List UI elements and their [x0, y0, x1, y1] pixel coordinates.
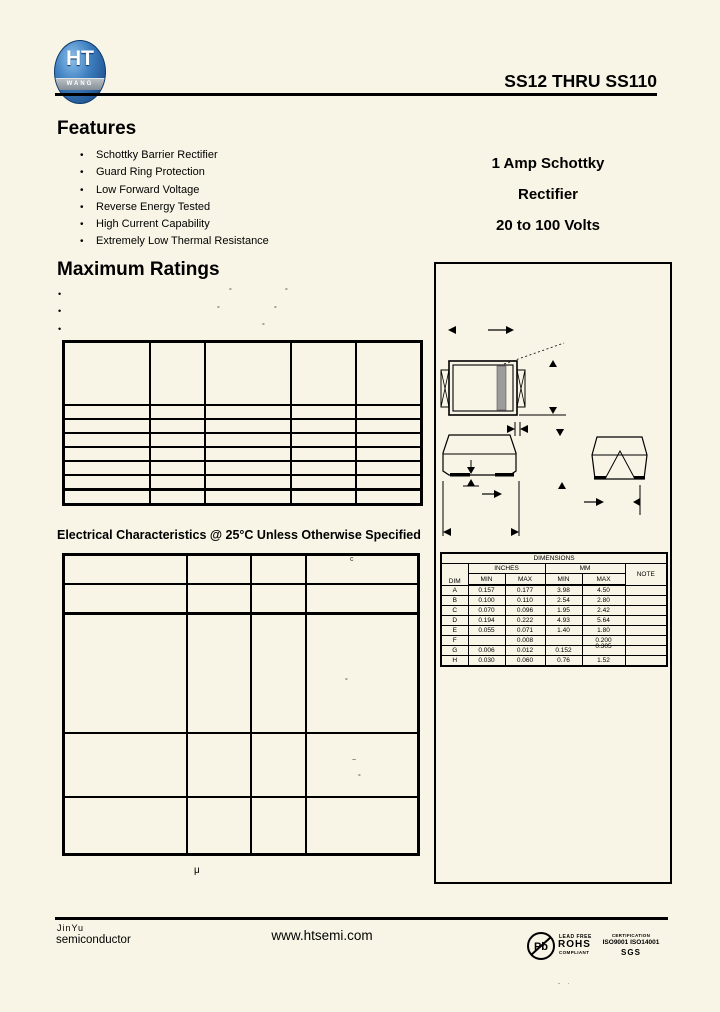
footer-company-name: JinYu: [57, 923, 84, 933]
datasheet-page: HT WANG ····· SS12 THRU SS110 Features S…: [0, 0, 720, 1012]
dims-group-inches: INCHES: [468, 564, 545, 574]
table-row: D0.1940.2224.935.64: [441, 616, 667, 626]
max-ratings-heading: Maximum Ratings: [57, 259, 220, 281]
dim-arrow-icon: [511, 528, 519, 536]
table-row: H0.0300.0600.761.52: [441, 656, 667, 667]
table-row: [64, 447, 422, 461]
dims-col-min: MIN: [468, 574, 505, 586]
table-row: [64, 733, 419, 797]
table-row: [64, 614, 419, 734]
pb-text: Pb: [534, 941, 548, 953]
summary-line-3: 20 to 100 Volts: [428, 210, 668, 241]
feature-item: Guard Ring Protection: [96, 164, 269, 181]
logo-band-text: WANG: [55, 78, 105, 90]
dims-col-max: MAX: [582, 574, 625, 586]
dim-arrow-icon: [633, 498, 640, 506]
table-row: DIM INCHES MM NOTE: [441, 564, 667, 574]
stray-degree-glyph: °: [217, 306, 220, 313]
stray-degree-glyph: °: [285, 288, 288, 295]
table-row: F0.0080.200: [441, 636, 667, 646]
dim-arrow-icon: [549, 360, 557, 367]
footer-divider: [55, 917, 668, 920]
compliant-label: COMPLIANT: [559, 950, 589, 955]
dim-arrow-icon: [520, 425, 528, 433]
lead-foot: [594, 476, 606, 480]
dim-arrow-icon: [506, 326, 514, 334]
stray-degree-glyph: °: [345, 678, 348, 685]
table-row: [64, 461, 422, 475]
max-ratings-table: [62, 340, 423, 506]
dim-arrow-icon: [549, 407, 557, 414]
table-row: [64, 342, 422, 406]
stray-degree-glyph: °: [358, 774, 361, 781]
dim-arrow-icon: [556, 429, 564, 436]
stray-degree-glyph: °: [274, 306, 277, 313]
dimensions-table: DIMENSIONS DIM INCHES MM NOTE MIN MAX MI…: [440, 552, 668, 667]
table-row: [64, 475, 422, 490]
stray-degree-glyph: °: [229, 288, 232, 295]
footer-website: www.htsemi.com: [222, 928, 422, 943]
dims-col-dim: DIM: [441, 564, 468, 586]
feature-item: Reverse Energy Tested: [96, 199, 269, 216]
feature-item: Low Forward Voltage: [96, 182, 269, 199]
package-side-view: [443, 429, 566, 536]
dim-arrow-icon: [448, 326, 456, 334]
table-row: [64, 433, 422, 447]
package-drawings: [436, 264, 670, 564]
dims-col-min: MIN: [545, 574, 582, 586]
sgs-label: SGS: [596, 948, 666, 957]
product-summary: 1 Amp Schottky Rectifier 20 to 100 Volts: [428, 148, 668, 241]
stray-glyph: c: [350, 556, 354, 563]
logo-text: HT: [55, 47, 105, 71]
feature-item: Schottky Barrier Rectifier: [96, 147, 269, 164]
feature-item: Extremely Low Thermal Resistance: [96, 233, 269, 250]
stray-degree-glyph: °: [262, 323, 265, 330]
summary-line-2: Rectifier: [428, 179, 668, 210]
dims-title: DIMENSIONS: [441, 553, 667, 564]
bullet-marker: •: [58, 289, 61, 299]
table-row: G0.0060.0120.1520.305: [441, 646, 667, 656]
table-row: [64, 584, 419, 614]
table-row: E0.0550.0711.401.80: [441, 626, 667, 636]
lead-foot: [495, 473, 514, 477]
page-mark: - ·: [558, 981, 573, 987]
feature-item: High Current Capability: [96, 216, 269, 233]
table-row: [64, 405, 422, 419]
micro-symbol: μ: [194, 865, 200, 876]
stray-glyph: ~: [352, 757, 356, 764]
dim-arrow-icon: [467, 467, 475, 474]
iso-label: ISO9001 ISO14001: [596, 939, 666, 946]
table-row: [64, 555, 419, 585]
lead-foot: [634, 476, 645, 480]
elec-char-heading: Electrical Characteristics @ 25°C Unless…: [57, 528, 421, 542]
table-row: C0.0700.0961.952.42: [441, 606, 667, 616]
certification-label: CERTIFICATION: [601, 933, 661, 938]
footer-company-name-2: semiconductor: [56, 934, 131, 946]
dims-group-mm: MM: [545, 564, 625, 574]
table-row: B0.1000.1102.542.80: [441, 596, 667, 606]
dims-col-max: MAX: [505, 574, 545, 586]
dim-arrow-icon: [443, 528, 451, 536]
table-row: [64, 797, 419, 855]
summary-line-1: 1 Amp Schottky: [428, 148, 668, 179]
package-top-view: [441, 326, 566, 436]
dim-arrow-icon: [558, 482, 566, 489]
page-title: SS12 THRU SS110: [350, 71, 657, 92]
bullet-marker: •: [58, 306, 61, 316]
lead-free-pb-logo: Pb: [526, 931, 556, 966]
table-row: DIMENSIONS: [441, 553, 667, 564]
dim-arrow-icon: [596, 498, 604, 506]
cathode-band: [497, 366, 506, 410]
title-divider: [55, 93, 657, 96]
features-heading: Features: [57, 118, 136, 140]
dim-arrow-icon: [494, 490, 502, 498]
table-row: A0.1570.1773.984.50: [441, 585, 667, 596]
dim-arrow-icon: [467, 479, 475, 486]
dims-col-note: NOTE: [625, 564, 667, 586]
table-row: [64, 419, 422, 433]
features-list: Schottky Barrier Rectifier Guard Ring Pr…: [96, 147, 269, 251]
table-row: [64, 490, 422, 505]
lead-foot: [450, 473, 470, 477]
bullet-marker: •: [58, 324, 61, 334]
elec-char-table: [62, 553, 420, 856]
dim-arrow-icon: [507, 425, 515, 433]
package-end-view: [584, 437, 647, 515]
rohs-label: ROHS: [558, 939, 591, 950]
